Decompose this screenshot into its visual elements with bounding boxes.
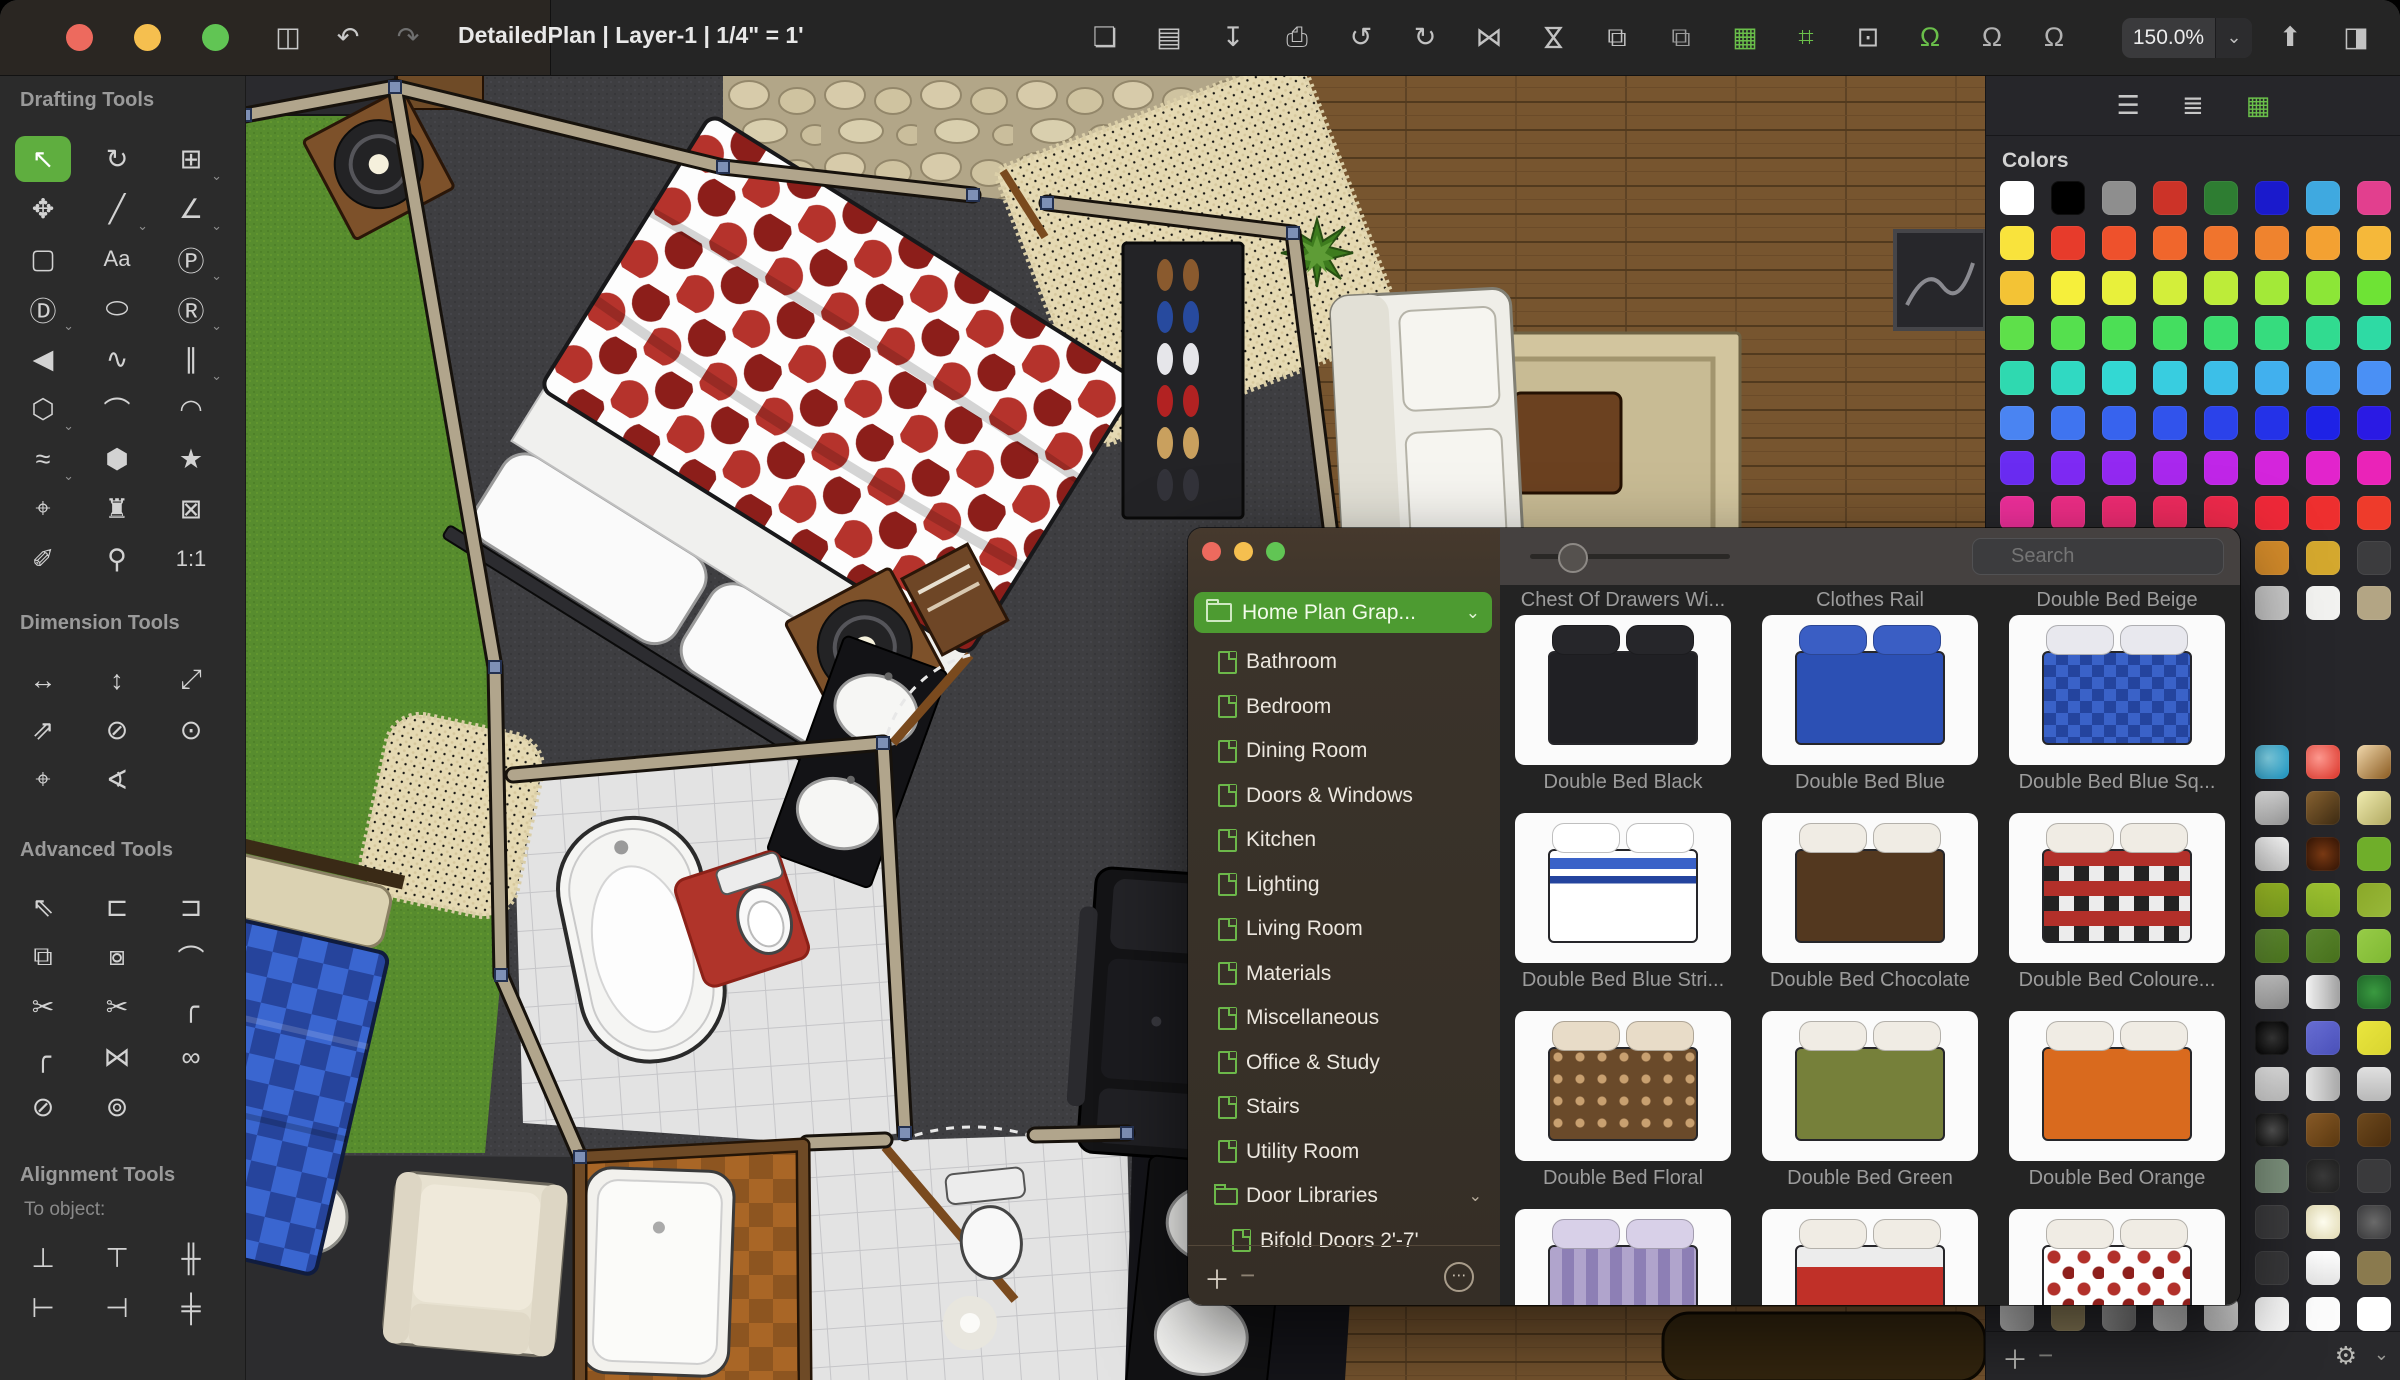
unlink-objects-tool[interactable]: ⊘ bbox=[6, 1082, 80, 1132]
line-tool[interactable]: ╱ bbox=[80, 184, 154, 234]
library-list-footer: ＋ − ⋯ bbox=[1188, 1245, 1500, 1305]
rotate-left-icon[interactable]: ↺ bbox=[1341, 0, 1381, 75]
import-icon[interactable]: ↧ bbox=[1213, 0, 1253, 75]
zoom-tool[interactable]: ⚲ bbox=[80, 534, 154, 584]
bathtub-lower[interactable] bbox=[580, 1167, 735, 1377]
color-swatch[interactable] bbox=[2306, 745, 2340, 779]
color-swatch[interactable] bbox=[2204, 406, 2238, 440]
category-dining-room[interactable]: Dining Room bbox=[1188, 729, 1500, 774]
app-window: ◫↶↷ DetailedPlan | Layer-1 | 1/4" = 1' ❏… bbox=[0, 0, 2400, 1380]
color-swatch[interactable] bbox=[2051, 496, 2085, 530]
section-title-advanced: Advanced Tools bbox=[20, 839, 245, 862]
color-swatch[interactable] bbox=[2051, 181, 2085, 215]
color-swatch[interactable] bbox=[2357, 361, 2391, 395]
document-icon bbox=[1218, 1140, 1237, 1163]
item-caption: Chest Of Drawers Wi... bbox=[1500, 589, 1746, 612]
category-bathroom[interactable]: Bathroom bbox=[1188, 640, 1500, 685]
text-tool[interactable]: Aa bbox=[80, 234, 154, 284]
bed-thumbnail bbox=[1795, 823, 1945, 943]
color-swatch[interactable] bbox=[2306, 1067, 2340, 1101]
color-settings-gear-icon[interactable]: ⚙ bbox=[2335, 1341, 2357, 1371]
color-swatch[interactable] bbox=[2153, 271, 2187, 305]
document-icon bbox=[1218, 1051, 1237, 1074]
color-swatch[interactable] bbox=[2255, 929, 2289, 963]
freehand-tool[interactable]: ≈ bbox=[6, 434, 80, 484]
zigzag-tool[interactable]: ∿ bbox=[80, 334, 154, 384]
bed-thumbnail bbox=[2042, 1021, 2192, 1141]
copy-style-icon[interactable]: ⧉ bbox=[1597, 0, 1637, 75]
color-swatch[interactable] bbox=[2000, 271, 2034, 305]
color-swatch[interactable] bbox=[2051, 316, 2085, 350]
color-swatch[interactable] bbox=[2051, 406, 2085, 440]
library-item[interactable] bbox=[1762, 1011, 1978, 1161]
add-library-button[interactable]: ＋ bbox=[1204, 1260, 1230, 1297]
bed-thumbnail bbox=[1548, 823, 1698, 943]
color-swatch[interactable] bbox=[2153, 406, 2187, 440]
item-label: Double Bed Blue Stri... bbox=[1500, 969, 1746, 992]
color-swatch[interactable] bbox=[2255, 1021, 2289, 1055]
item-caption: Clothes Rail bbox=[1747, 589, 1993, 612]
cream-armchair[interactable] bbox=[382, 1171, 568, 1357]
library-item[interactable] bbox=[1515, 1011, 1731, 1161]
zoom-chevron-icon[interactable]: ⌄ bbox=[2215, 18, 2252, 58]
library-toolbar bbox=[1500, 528, 2240, 586]
color-swatch[interactable] bbox=[2357, 541, 2391, 575]
color-swatch[interactable] bbox=[2102, 271, 2136, 305]
section-title-drafting: Drafting Tools bbox=[20, 89, 245, 112]
document-icon bbox=[1218, 1007, 1237, 1030]
bed-thumbnail bbox=[1548, 625, 1698, 745]
color-swatch[interactable] bbox=[2357, 1205, 2391, 1239]
document-icon bbox=[1218, 651, 1237, 674]
horizontal-dimension-tool[interactable]: ↔ bbox=[6, 655, 80, 705]
flip-vertical-icon[interactable]: ⋈ bbox=[1533, 0, 1573, 75]
color-swatch[interactable] bbox=[2255, 1251, 2289, 1285]
eyedropper-tool[interactable]: ✐ bbox=[6, 534, 80, 584]
distribute-vertical-tool[interactable]: ╫ bbox=[154, 1233, 228, 1283]
item-label: Double Bed Green bbox=[1747, 1167, 1993, 1190]
color-swatch[interactable] bbox=[2153, 226, 2187, 260]
bed-thumbnail bbox=[1795, 1219, 1945, 1305]
library-item[interactable] bbox=[1515, 813, 1731, 963]
color-swatch[interactable] bbox=[2357, 975, 2391, 1009]
redo-icon[interactable]: ↷ bbox=[388, 0, 428, 75]
color-swatch[interactable] bbox=[2306, 1251, 2340, 1285]
library-item[interactable] bbox=[2009, 615, 2225, 765]
color-swatch[interactable] bbox=[2102, 181, 2136, 215]
to-object-label: To object: bbox=[24, 1199, 245, 1221]
distribute-horizontal-tool[interactable]: ╪ bbox=[154, 1283, 228, 1333]
library-zoom-button[interactable] bbox=[1266, 542, 1285, 561]
folder-icon bbox=[1214, 1188, 1238, 1205]
item-label: Double Bed Orange bbox=[1994, 1167, 2240, 1190]
collection-chevron-icon: ⌄ bbox=[1466, 603, 1480, 623]
pan-tool[interactable]: ✥ bbox=[6, 184, 80, 234]
color-swatch[interactable] bbox=[2102, 451, 2136, 485]
category-office-study[interactable]: Office & Study bbox=[1188, 1041, 1500, 1086]
search-input[interactable] bbox=[1972, 538, 2224, 575]
color-swatch[interactable] bbox=[2357, 1297, 2391, 1331]
color-swatch[interactable] bbox=[2306, 1297, 2340, 1331]
color-swatch[interactable] bbox=[2153, 496, 2187, 530]
color-swatch[interactable] bbox=[2306, 883, 2340, 917]
library-item[interactable] bbox=[1762, 1209, 1978, 1305]
document-icon bbox=[1218, 695, 1237, 718]
color-swatch[interactable] bbox=[2357, 883, 2391, 917]
color-swatch[interactable] bbox=[2204, 451, 2238, 485]
color-swatch[interactable] bbox=[2000, 181, 2034, 215]
ceiling-lamp-1[interactable] bbox=[943, 1296, 997, 1350]
parallel-line-tool[interactable]: ∥ bbox=[154, 334, 228, 384]
share-icon[interactable]: ⬆ bbox=[2270, 0, 2310, 75]
library-item[interactable] bbox=[2009, 1209, 2225, 1305]
category-materials[interactable]: Materials bbox=[1188, 952, 1500, 997]
library-item[interactable] bbox=[1515, 1209, 1731, 1305]
radius-dimension-tool[interactable]: ⊙ bbox=[154, 705, 228, 755]
diagonal-dimension-tool[interactable]: ⤢ bbox=[154, 655, 228, 705]
blob-tool[interactable]: ⬢ bbox=[80, 434, 154, 484]
star-tool[interactable]: ★ bbox=[154, 434, 228, 484]
color-swatch[interactable] bbox=[2357, 837, 2391, 871]
color-swatch[interactable] bbox=[2357, 1067, 2391, 1101]
color-swatch[interactable] bbox=[2357, 1113, 2391, 1147]
open-folder-icon[interactable]: ▤ bbox=[1149, 0, 1189, 75]
color-swatch[interactable] bbox=[2000, 496, 2034, 530]
color-swatch[interactable] bbox=[2255, 271, 2289, 305]
sidebar-toggle-icon[interactable]: ◫ bbox=[268, 0, 308, 75]
vertical-dimension-tool[interactable]: ↕ bbox=[80, 655, 154, 705]
color-swatch[interactable] bbox=[2204, 181, 2238, 215]
cut-tool[interactable]: ✂ bbox=[6, 982, 80, 1032]
color-swatch[interactable] bbox=[2051, 361, 2085, 395]
new-document-icon[interactable]: ❏ bbox=[1085, 0, 1125, 75]
item-label: Double Bed Blue Sq... bbox=[1994, 771, 2240, 794]
snap-to-edge-icon[interactable]: Ω bbox=[2034, 0, 2074, 75]
align-bottom-tool[interactable]: ⊥ bbox=[6, 1233, 80, 1283]
color-swatch[interactable] bbox=[2255, 791, 2289, 825]
zoom-value: 150.0% bbox=[2122, 18, 2215, 58]
color-swatch[interactable] bbox=[2255, 1205, 2289, 1239]
document-icon bbox=[1218, 784, 1237, 807]
color-swatch[interactable] bbox=[2255, 1159, 2289, 1193]
item-caption: Double Bed Beige bbox=[1994, 589, 2240, 612]
color-swatch[interactable] bbox=[2051, 271, 2085, 305]
chamfer-corner-tool[interactable]: ╭ bbox=[6, 1032, 80, 1082]
ellipse-tool[interactable]: ⬭ bbox=[80, 284, 154, 334]
combine-shapes-tool[interactable]: ⧉ bbox=[6, 932, 80, 982]
stamp-tool[interactable]: ♜ bbox=[80, 484, 154, 534]
polygon-tool[interactable]: ⬡ bbox=[6, 384, 80, 434]
color-swatch[interactable] bbox=[2306, 1205, 2340, 1239]
color-swatch[interactable] bbox=[2357, 271, 2391, 305]
document-title: DetailedPlan | Layer-1 | 1/4" = 1' bbox=[458, 22, 804, 49]
category-list: BathroomBedroomDining RoomDoors & Window… bbox=[1188, 640, 1500, 1242]
fillet-corner-tool[interactable]: ╭ bbox=[154, 982, 228, 1032]
bed-thumbnail bbox=[2042, 823, 2192, 943]
white-armchair[interactable] bbox=[1330, 288, 1524, 567]
color-swatch[interactable] bbox=[2255, 1067, 2289, 1101]
category-utility-room[interactable]: Utility Room bbox=[1188, 1130, 1500, 1175]
diameter-dimension-tool[interactable]: ⊘ bbox=[80, 705, 154, 755]
angle-line-tool[interactable]: ∠ bbox=[154, 184, 228, 234]
frame-tool-icon[interactable]: ⊡ bbox=[1848, 0, 1888, 75]
bed-thumbnail bbox=[1548, 1219, 1698, 1305]
color-swatch[interactable] bbox=[2102, 361, 2136, 395]
swatch-grid-icon[interactable]: ▦ bbox=[2246, 90, 2271, 121]
library-item-grid: Chest Of Drawers Wi...Clothes RailDouble… bbox=[1500, 585, 2240, 1305]
category-living-room[interactable]: Living Room bbox=[1188, 907, 1500, 952]
color-swatch[interactable] bbox=[2153, 181, 2187, 215]
bed-thumbnail bbox=[2042, 625, 2192, 745]
color-swatch[interactable] bbox=[2306, 1021, 2340, 1055]
zoom-control[interactable]: 150.0% ⌄ bbox=[2122, 18, 2252, 58]
align-top-tool[interactable]: ⊤ bbox=[80, 1233, 154, 1283]
snap-to-object-icon[interactable]: Ω bbox=[1910, 0, 1950, 75]
document-icon bbox=[1218, 1096, 1237, 1119]
tools-sidebar: Drafting Tools ↖↻⊞✥╱∠▢AaⓅⒹ⬭Ⓡ◀∿∥⬡⌒◠≈⬢★⌖♜⊠… bbox=[0, 75, 246, 1380]
color-swatch[interactable] bbox=[2357, 929, 2391, 963]
push-left-tool[interactable]: ⊏ bbox=[80, 882, 154, 932]
color-swatch[interactable] bbox=[2255, 316, 2289, 350]
section-title-dimension: Dimension Tools bbox=[20, 612, 245, 635]
color-swatch[interactable] bbox=[2102, 406, 2136, 440]
titlebar: ◫↶↷ DetailedPlan | Layer-1 | 1/4" = 1' ❏… bbox=[0, 0, 2400, 76]
color-swatch[interactable] bbox=[2357, 745, 2391, 779]
color-swatch[interactable] bbox=[2306, 586, 2340, 620]
library-minimize-button[interactable] bbox=[1234, 542, 1253, 561]
actual-size-tool[interactable]: 1:1 bbox=[154, 534, 228, 584]
add-color-button[interactable]: ＋ bbox=[2002, 1340, 2028, 1377]
color-swatch[interactable] bbox=[2306, 1159, 2340, 1193]
color-swatch[interactable] bbox=[2051, 451, 2085, 485]
select-tool[interactable]: ↖ bbox=[6, 134, 80, 184]
color-swatch[interactable] bbox=[2357, 1021, 2391, 1055]
color-swatch[interactable] bbox=[2255, 586, 2289, 620]
crop-tool[interactable]: ⊞ bbox=[154, 134, 228, 184]
bezier-tool[interactable]: ⌒ bbox=[80, 384, 154, 434]
color-swatch[interactable] bbox=[2357, 451, 2391, 485]
center-dimension-tool[interactable]: ⌖ bbox=[6, 755, 80, 805]
remove-library-button[interactable]: − bbox=[1240, 1260, 1255, 1291]
library-sidebar: Home Plan Grap... ⌄ BathroomBedroomDinin… bbox=[1188, 528, 1500, 1305]
color-swatch[interactable] bbox=[2000, 406, 2034, 440]
color-swatch[interactable] bbox=[2306, 271, 2340, 305]
color-swatch[interactable] bbox=[2255, 361, 2289, 395]
link-objects-tool[interactable]: ∞ bbox=[154, 1032, 228, 1082]
color-swatch[interactable] bbox=[2255, 226, 2289, 260]
color-swatch[interactable] bbox=[2255, 451, 2289, 485]
library-item[interactable] bbox=[1515, 615, 1731, 765]
library-window: Home Plan Grap... ⌄ BathroomBedroomDinin… bbox=[1188, 528, 2240, 1305]
layers-icon[interactable]: ≣ bbox=[2182, 90, 2204, 121]
color-swatch[interactable] bbox=[2102, 316, 2136, 350]
wood-desk[interactable] bbox=[1663, 1313, 1985, 1380]
colors-title: Colors bbox=[2002, 149, 2069, 173]
color-swatch[interactable] bbox=[2102, 496, 2136, 530]
category-bedroom[interactable]: Bedroom bbox=[1188, 685, 1500, 730]
library-item[interactable] bbox=[1762, 615, 1978, 765]
bed-thumbnail bbox=[2042, 1219, 2192, 1305]
color-swatch[interactable] bbox=[2306, 929, 2340, 963]
advanced-select-tool[interactable]: ⇖ bbox=[6, 882, 80, 932]
angled-dimension-tool[interactable]: ⇗ bbox=[6, 705, 80, 755]
color-swatch[interactable] bbox=[2255, 745, 2289, 779]
remove-color-button[interactable]: − bbox=[2038, 1340, 2053, 1371]
color-swatch[interactable] bbox=[2357, 496, 2391, 530]
color-swatch[interactable] bbox=[2255, 1113, 2289, 1147]
document-icon bbox=[1218, 740, 1237, 763]
color-swatch[interactable] bbox=[2153, 451, 2187, 485]
inspector-tabs: ☰≣▦ bbox=[1986, 75, 2400, 136]
zoom-button[interactable] bbox=[202, 24, 229, 51]
color-swatch[interactable] bbox=[2204, 361, 2238, 395]
color-swatch[interactable] bbox=[2255, 883, 2289, 917]
arc-tool[interactable]: ◠ bbox=[154, 384, 228, 434]
rotate-right-icon[interactable]: ↻ bbox=[1405, 0, 1445, 75]
picture-frame[interactable] bbox=[1895, 231, 1985, 329]
mirror-tool[interactable]: ⋈ bbox=[80, 1032, 154, 1082]
color-swatch[interactable] bbox=[2306, 316, 2340, 350]
color-swatch[interactable] bbox=[2357, 791, 2391, 825]
color-swatch[interactable] bbox=[2255, 1297, 2289, 1331]
item-label: Double Bed Floral bbox=[1500, 1167, 1746, 1190]
subtract-shapes-tool[interactable]: ⧇ bbox=[80, 932, 154, 982]
color-swatch[interactable] bbox=[2357, 1159, 2391, 1193]
push-right-tool[interactable]: ⊐ bbox=[154, 882, 228, 932]
color-swatch[interactable] bbox=[2306, 406, 2340, 440]
color-swatch[interactable] bbox=[2306, 1113, 2340, 1147]
snap-to-grid-icon[interactable]: Ω bbox=[1972, 0, 2012, 75]
color-swatch[interactable] bbox=[2000, 361, 2034, 395]
document-icon bbox=[1218, 829, 1237, 852]
color-swatch[interactable] bbox=[2357, 1251, 2391, 1285]
unlink-all-tool[interactable]: ⊚ bbox=[80, 1082, 154, 1132]
color-swatch[interactable] bbox=[2255, 181, 2289, 215]
color-swatch[interactable] bbox=[2255, 406, 2289, 440]
edit-points-tool[interactable]: ⌒ bbox=[154, 932, 228, 982]
color-swatch[interactable] bbox=[2051, 226, 2085, 260]
color-swatch[interactable] bbox=[2306, 226, 2340, 260]
document-icon bbox=[1218, 918, 1237, 941]
document-icon bbox=[1218, 873, 1237, 896]
print-icon[interactable]: ⎙ bbox=[1277, 0, 1317, 75]
align-right-tool[interactable]: ⊣ bbox=[80, 1283, 154, 1333]
color-swatch[interactable] bbox=[2102, 226, 2136, 260]
thumbnail-size-slider[interactable] bbox=[1530, 554, 1730, 559]
angle-dimension-tool[interactable]: ∢ bbox=[80, 755, 154, 805]
rectangle-tool[interactable]: ▢ bbox=[6, 234, 80, 284]
section-title-alignment: Alignment Tools bbox=[20, 1164, 245, 1187]
color-swatch[interactable] bbox=[2306, 496, 2340, 530]
color-swatch[interactable] bbox=[2357, 181, 2391, 215]
library-close-button[interactable] bbox=[1202, 542, 1221, 561]
duplicate-icon[interactable]: ⧉ bbox=[1661, 0, 1701, 75]
color-swatch[interactable] bbox=[2153, 361, 2187, 395]
document-icon bbox=[1218, 962, 1237, 985]
cut-multiple-tool[interactable]: ✂ bbox=[80, 982, 154, 1032]
color-swatch[interactable] bbox=[2357, 226, 2391, 260]
center-mark-tool[interactable]: ⌖ bbox=[6, 484, 80, 534]
color-swatch[interactable] bbox=[2255, 975, 2289, 1009]
color-swatch[interactable] bbox=[2357, 406, 2391, 440]
arrow-shape-tool[interactable]: ◀ bbox=[6, 334, 80, 384]
folder-icon bbox=[1206, 603, 1232, 622]
library-item[interactable] bbox=[2009, 813, 2225, 963]
color-swatch[interactable] bbox=[2153, 316, 2187, 350]
color-swatch[interactable] bbox=[2204, 271, 2238, 305]
color-swatch[interactable] bbox=[2306, 361, 2340, 395]
slider-knob[interactable] bbox=[1558, 543, 1588, 573]
shoe-cabinet[interactable] bbox=[1123, 243, 1243, 518]
color-swatch[interactable] bbox=[2306, 181, 2340, 215]
item-label: Double Bed Blue bbox=[1747, 771, 1993, 794]
category-doors-windows[interactable]: Doors & Windows bbox=[1188, 774, 1500, 819]
category-lighting[interactable]: Lighting bbox=[1188, 863, 1500, 908]
color-swatch[interactable] bbox=[2000, 226, 2034, 260]
collection-selector[interactable]: Home Plan Grap... ⌄ bbox=[1194, 592, 1492, 633]
color-swatch[interactable] bbox=[2255, 496, 2289, 530]
color-swatch[interactable] bbox=[2255, 837, 2289, 871]
library-item[interactable] bbox=[1762, 813, 1978, 963]
bed-thumbnail bbox=[1795, 1021, 1945, 1141]
color-swatch[interactable] bbox=[2306, 451, 2340, 485]
collection-label: Home Plan Grap... bbox=[1242, 601, 1466, 625]
category-stairs[interactable]: Stairs bbox=[1188, 1085, 1500, 1130]
color-swatch[interactable] bbox=[2255, 541, 2289, 575]
color-swatch[interactable] bbox=[2204, 226, 2238, 260]
rotate-tool[interactable]: ↻ bbox=[80, 134, 154, 184]
dimension-shape-tool[interactable]: Ⓓ bbox=[6, 284, 80, 334]
color-swatch[interactable] bbox=[2000, 316, 2034, 350]
grid-view-icon[interactable]: ▦ bbox=[1725, 0, 1765, 75]
chevron-down-icon: ⌄ bbox=[1469, 1186, 1482, 1206]
rounded-rect-tool[interactable]: Ⓡ bbox=[154, 284, 228, 334]
color-swatch[interactable] bbox=[2306, 541, 2340, 575]
item-label: Double Bed Chocolate bbox=[1747, 969, 1993, 992]
folder-door-libraries[interactable]: Door Libraries⌄ bbox=[1188, 1174, 1500, 1219]
colors-footer: ＋ − ⚙ ⌄ bbox=[1986, 1331, 2400, 1380]
item-label: Double Bed Coloure... bbox=[1994, 969, 2240, 992]
color-swatch[interactable] bbox=[2357, 586, 2391, 620]
color-swatch[interactable] bbox=[2306, 975, 2340, 1009]
category-kitchen[interactable]: Kitchen bbox=[1188, 818, 1500, 863]
color-settings-chevron-icon[interactable]: ⌄ bbox=[2374, 1344, 2389, 1365]
library-item[interactable] bbox=[2009, 1011, 2225, 1161]
snap-to-guides-icon[interactable]: ⌗ bbox=[1786, 0, 1826, 75]
color-swatch[interactable] bbox=[2000, 451, 2034, 485]
category-miscellaneous[interactable]: Miscellaneous bbox=[1188, 996, 1500, 1041]
delete-box-tool[interactable]: ⊠ bbox=[154, 484, 228, 534]
align-left-tool[interactable]: ⊢ bbox=[6, 1283, 80, 1333]
library-more-button[interactable]: ⋯ bbox=[1444, 1262, 1474, 1292]
color-swatch[interactable] bbox=[2306, 837, 2340, 871]
color-swatch[interactable] bbox=[2357, 316, 2391, 350]
close-button[interactable] bbox=[66, 24, 93, 51]
bed-thumbnail bbox=[1795, 625, 1945, 745]
parametric-shape-tool[interactable]: Ⓟ bbox=[154, 234, 228, 284]
right-panel-toggle-icon[interactable]: ◨ bbox=[2336, 0, 2376, 75]
flip-horizontal-icon[interactable]: ⋈ bbox=[1469, 0, 1509, 75]
color-swatch[interactable] bbox=[2204, 496, 2238, 530]
undo-icon[interactable]: ↶ bbox=[328, 0, 368, 75]
item-label: Double Bed Black bbox=[1500, 771, 1746, 794]
minimize-button[interactable] bbox=[134, 24, 161, 51]
bed-thumbnail bbox=[1548, 1021, 1698, 1141]
adjust-sliders-icon[interactable]: ☰ bbox=[2117, 90, 2140, 121]
color-swatch[interactable] bbox=[2306, 791, 2340, 825]
color-swatch[interactable] bbox=[2204, 316, 2238, 350]
